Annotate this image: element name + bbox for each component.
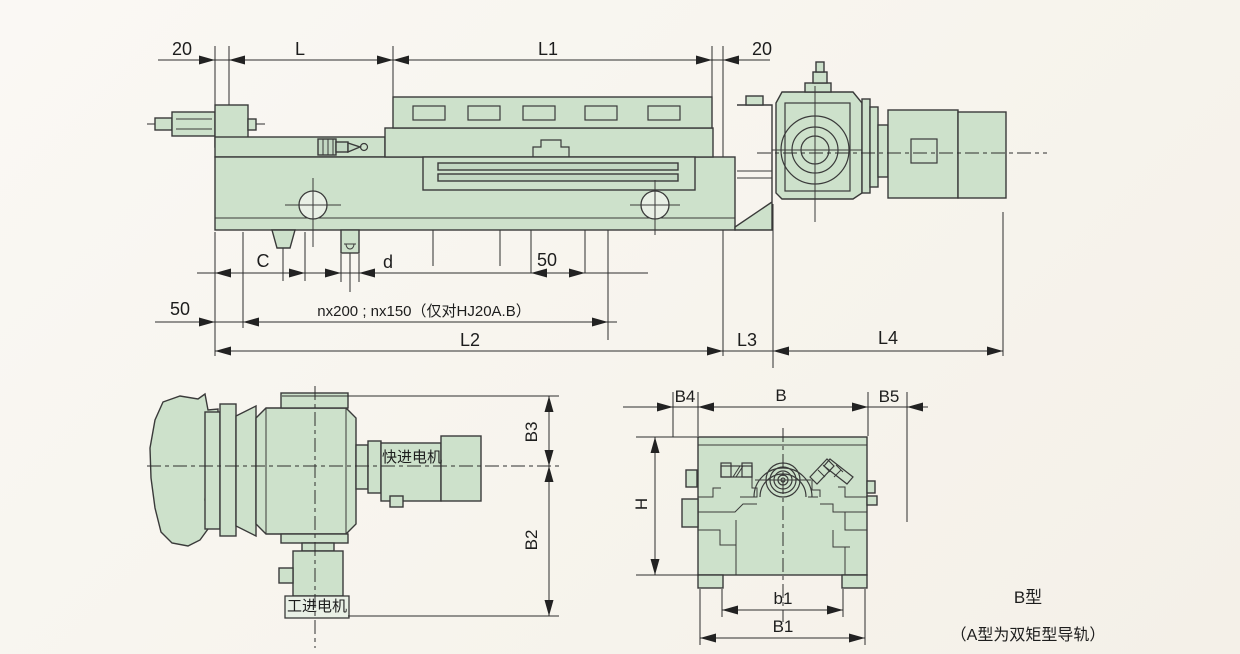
locating-peg bbox=[341, 230, 359, 253]
adapter-cone bbox=[236, 406, 256, 536]
dim-20-right: 20 bbox=[752, 39, 772, 59]
dim-B: B bbox=[775, 386, 786, 405]
dim-pitch: nx200 ; nx150（仅对HJ20A.B） bbox=[317, 303, 530, 320]
t-slot-1 bbox=[438, 163, 678, 170]
t-slot-2 bbox=[438, 174, 678, 181]
technical-drawing: 20 L L1 20 C d 50 50 nx200 ; nx150（仅对HJ2… bbox=[0, 0, 1240, 654]
dim-H: H bbox=[632, 498, 651, 510]
dim-C: C bbox=[257, 251, 270, 271]
screw-shank bbox=[172, 112, 215, 136]
rapid-motor-neck bbox=[356, 445, 368, 489]
pedestal-tab bbox=[746, 96, 763, 105]
left-clamp-block bbox=[682, 499, 698, 527]
drive-end bbox=[735, 62, 1047, 230]
coupling-housing bbox=[888, 110, 958, 198]
end-bearing-nub bbox=[248, 119, 256, 130]
right-tab-1 bbox=[867, 481, 875, 493]
table-mid-band bbox=[385, 128, 713, 157]
vent-bolt bbox=[813, 72, 827, 83]
dim-50-left: 50 bbox=[170, 299, 190, 319]
dim-L: L bbox=[295, 39, 305, 59]
dim-L4: L4 bbox=[878, 328, 898, 348]
type-label: B型 bbox=[1014, 588, 1042, 607]
motor-view: 快进电机 工进电机 B3 B2 bbox=[147, 386, 559, 648]
section-leg-left bbox=[698, 575, 723, 588]
drive-motor bbox=[958, 112, 1006, 198]
dim-B1: B1 bbox=[773, 617, 794, 636]
flange-1 bbox=[862, 99, 870, 193]
main-view: 20 L L1 20 C d 50 50 nx200 ; nx150（仅对HJ2… bbox=[147, 39, 1047, 368]
section-view: B4 B B5 H b1 B1 B型 （A型为双矩型导轨） bbox=[623, 386, 1105, 645]
work-motor-neck bbox=[302, 543, 334, 551]
vent-bolt-tip bbox=[816, 62, 824, 72]
dim-b1: b1 bbox=[774, 589, 793, 608]
base-foot bbox=[272, 230, 295, 248]
rapid-motor-endcap bbox=[441, 436, 481, 501]
dim-B4: B4 bbox=[675, 387, 696, 406]
flange-plate-2 bbox=[220, 404, 236, 536]
flange-plate-1 bbox=[205, 412, 220, 529]
rapid-motor-label: 快进电机 bbox=[382, 449, 442, 466]
right-tab-2 bbox=[867, 496, 877, 505]
dim-50-top: 50 bbox=[537, 250, 557, 270]
dim-L1: L1 bbox=[538, 39, 558, 59]
dim-L3: L3 bbox=[737, 330, 757, 350]
left-clamp-bolt bbox=[686, 470, 697, 487]
slide-unit-body bbox=[147, 97, 735, 253]
work-motor-lug bbox=[279, 568, 293, 583]
dim-20-left: 20 bbox=[172, 39, 192, 59]
dim-B2: B2 bbox=[522, 530, 541, 551]
section-leg-right bbox=[842, 575, 867, 588]
gearbox-front bbox=[256, 408, 356, 534]
pedestal bbox=[735, 105, 772, 230]
gearbox-cap bbox=[805, 83, 831, 92]
dim-L2: L2 bbox=[460, 330, 480, 350]
table-top-plate bbox=[393, 97, 712, 128]
rapid-motor-flange bbox=[368, 441, 381, 493]
shaft-collar bbox=[878, 125, 888, 177]
flange-2 bbox=[870, 107, 878, 187]
screw-tip bbox=[155, 118, 172, 130]
type-note: （A型为双矩型导轨） bbox=[951, 626, 1106, 644]
dim-B3: B3 bbox=[522, 422, 541, 443]
dim-B5: B5 bbox=[879, 387, 900, 406]
work-motor-label: 工进电机 bbox=[287, 598, 347, 615]
work-motor-body bbox=[293, 551, 343, 596]
dim-d: d bbox=[383, 252, 393, 272]
rapid-motor-lug bbox=[390, 496, 403, 507]
